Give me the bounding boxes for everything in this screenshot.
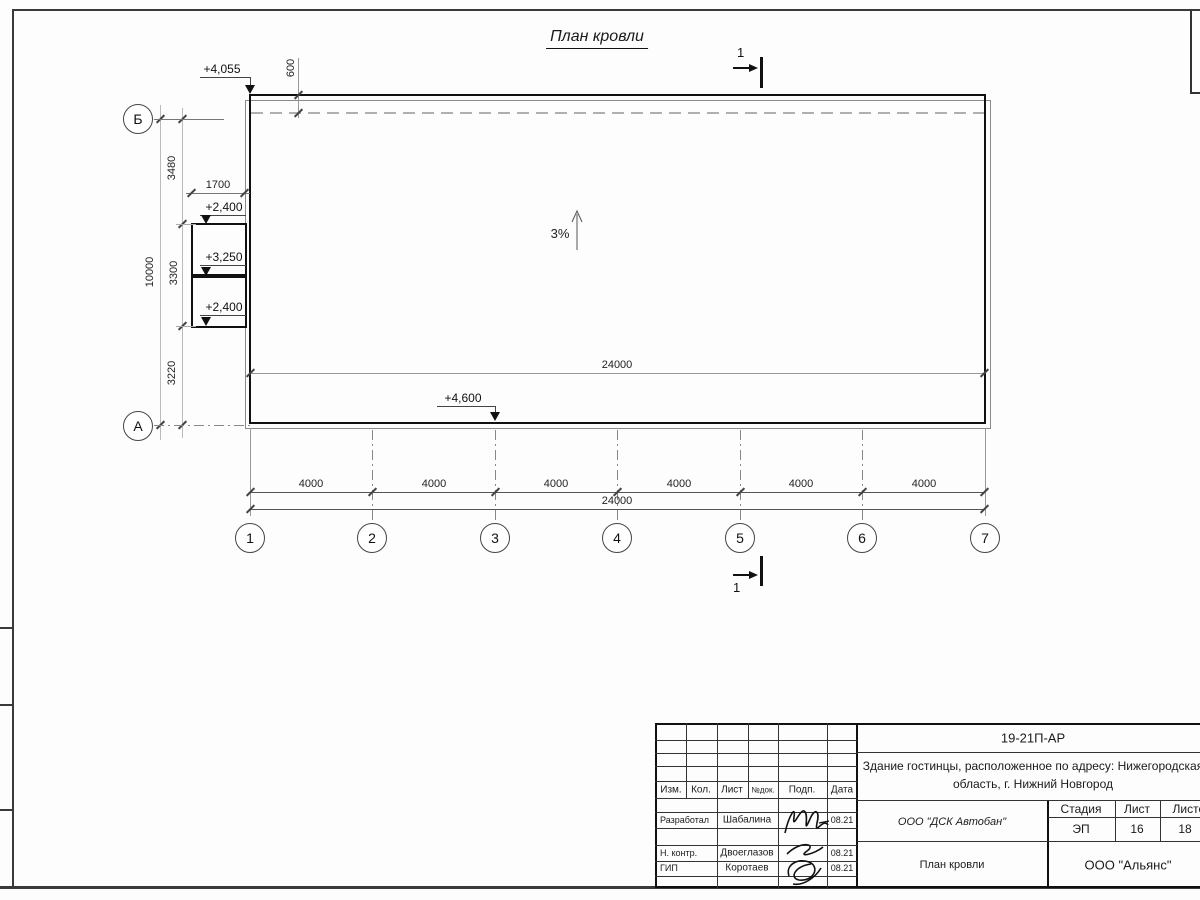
dim-3220-label: 3220 [166, 361, 178, 385]
elevation-leader [200, 265, 246, 266]
dim-4000-label: 4000 [912, 478, 936, 490]
axis-extension-5 [740, 430, 741, 520]
elevation-arrow [201, 317, 211, 326]
tb-name-gip: Коротаев [725, 863, 768, 874]
section-mark-top-arrow [749, 64, 758, 72]
dim-600-label: 600 [285, 59, 297, 77]
tb-list-value: 16 [1130, 822, 1143, 836]
axis-line-b [154, 119, 224, 120]
dim-600-extension [298, 58, 299, 118]
axis-label: 7 [981, 530, 989, 546]
axis-label: 5 [736, 530, 744, 546]
frame-left-tick-1 [0, 627, 12, 629]
tb-date-developer: 08.21 [831, 815, 854, 825]
axis-extension-3 [495, 430, 496, 520]
tb-header-data: Дата [831, 785, 853, 796]
dim-4000-label: 4000 [667, 478, 691, 490]
titleblock-left [655, 723, 657, 888]
axis-label: 1 [246, 530, 254, 546]
elevation-arrow [245, 85, 255, 94]
elevation-arrow [201, 267, 211, 276]
drawing-sheet: План кровли 3% 24000 1 1 +4,055 +2,400 +… [0, 0, 1200, 900]
elevation-annex-top: +2,400 [205, 200, 242, 214]
axis-label: Б [133, 111, 142, 127]
frame-left-tick-3 [0, 809, 12, 811]
axis-label: 3 [491, 530, 499, 546]
axis-label: 4 [613, 530, 621, 546]
tb-project-line2: область, г. Нижний Новгород [953, 777, 1113, 791]
dim-extension-axis1 [250, 428, 251, 516]
section-mark-bottom-arrowline [733, 574, 750, 576]
tb-line [857, 752, 1200, 753]
tb-header-izm: Изм. [660, 785, 681, 796]
elevation-top-left: +4,055 [203, 62, 240, 76]
section-mark-top-bar [760, 57, 763, 88]
section-mark-bottom-label: 1 [733, 580, 740, 595]
tb-header-podp: Подп. [789, 785, 816, 796]
tb-header-list: Лист [721, 785, 743, 796]
tb-role-ncontrol: Н. контр. [660, 848, 697, 858]
tb-list-header: Лист [1124, 802, 1150, 816]
dim-3480-label: 3480 [166, 156, 178, 180]
frame-left-border [12, 9, 14, 888]
section-mark-top-arrowline [733, 67, 750, 69]
interior-dim-line [250, 373, 985, 374]
elevation-arrow [490, 412, 500, 421]
dim-extension [176, 224, 196, 225]
section-mark-bottom-bar [760, 556, 763, 586]
tb-name-ncontrol: Двоеглазов [720, 848, 773, 859]
tb-line [1115, 800, 1116, 841]
dim-extension [176, 326, 196, 327]
axis-extension-6 [862, 430, 863, 520]
tb-line [857, 841, 1200, 842]
titleblock-top [655, 723, 1200, 725]
tb-doc-number: 19-21П-АР [1001, 731, 1065, 746]
corner-box-bottom-edge [1190, 92, 1200, 94]
dim-24000-line [250, 509, 985, 510]
tb-line [717, 723, 718, 888]
elevation-annex-mid: +3,250 [205, 250, 242, 264]
tb-project-line1: Здание гостинцы, расположенное по адресу… [863, 759, 1200, 773]
section-mark-top-label: 1 [737, 45, 744, 60]
dim-4000-label: 4000 [422, 478, 446, 490]
tb-contractor: ООО "ДСК Автобан" [898, 816, 1006, 828]
corner-box-left-edge [1190, 10, 1192, 93]
axis-line-a [154, 425, 250, 426]
dim-extension-axis7 [985, 428, 986, 516]
axis-extension-2 [372, 430, 373, 520]
axis-label: 2 [368, 530, 376, 546]
tb-stage-value: ЭП [1072, 822, 1089, 836]
dim-1700-label: 1700 [206, 179, 230, 191]
axis-label: А [133, 418, 142, 434]
roof-hidden-edge [251, 112, 984, 114]
tb-header-ndok: №док. [751, 786, 774, 795]
tb-role-gip: ГИП [660, 863, 678, 873]
dim-24000-label: 24000 [602, 495, 633, 507]
tb-name-developer: Шабалина [723, 815, 771, 826]
tb-date-ncontrol: 08.21 [831, 848, 854, 858]
tb-header-kol: Кол. [691, 785, 711, 796]
tb-company: ООО "Альянс" [1085, 858, 1172, 873]
elevation-bottom: +4,600 [444, 391, 481, 405]
tb-sheet-name: План кровли [920, 859, 985, 871]
roof-outline [249, 94, 986, 424]
dim-4000-label: 4000 [789, 478, 813, 490]
axis-bubble-row-a: А [123, 411, 153, 441]
tb-listov-value: 18 [1178, 822, 1191, 836]
elevation-leader [437, 406, 496, 407]
tb-line [748, 723, 749, 798]
axis-bubble-col-1: 1 [235, 523, 265, 553]
elevation-leader [200, 315, 246, 316]
titleblock-bottom [655, 886, 1200, 888]
dim-4000-label: 4000 [299, 478, 323, 490]
axis-label: 6 [858, 530, 866, 546]
axis-bubble-col-6: 6 [847, 523, 877, 553]
dim-3300-label: 3300 [168, 261, 180, 285]
tb-stage-header: Стадия [1061, 802, 1102, 816]
titleblock-divider-right [1047, 800, 1049, 888]
tb-date-gip: 08.21 [831, 863, 854, 873]
signature-gip [781, 838, 831, 888]
frame-left-tick-2 [0, 704, 12, 706]
axis-bubble-col-3: 3 [480, 523, 510, 553]
elevation-annex-bottom: +2,400 [205, 300, 242, 314]
axis-bubble-col-7: 7 [970, 523, 1000, 553]
section-mark-bottom-arrow [749, 571, 758, 579]
dim-chain-outer-line [160, 105, 161, 440]
elevation-arrow [201, 215, 211, 224]
frame-top-border [12, 9, 1200, 11]
tb-line [1160, 800, 1161, 841]
drawing-title: План кровли [546, 28, 648, 49]
axis-bubble-col-5: 5 [725, 523, 755, 553]
tb-line [686, 723, 687, 798]
elevation-leader [200, 77, 251, 78]
axis-bubble-row-b: Б [123, 104, 153, 134]
dim-4000-label: 4000 [544, 478, 568, 490]
tb-line [1048, 817, 1200, 818]
axis-bubble-col-4: 4 [602, 523, 632, 553]
tb-listov-header: Листов [1173, 802, 1200, 816]
dim-chain-inner-line [182, 108, 183, 438]
dim-10000-label: 10000 [144, 257, 156, 288]
tb-role-developer: Разработал [660, 815, 709, 825]
slope-arrow-icon [569, 208, 585, 252]
slope-label: 3% [551, 226, 570, 241]
interior-dim-label: 24000 [602, 359, 633, 371]
axis-bubble-col-2: 2 [357, 523, 387, 553]
tb-line [857, 800, 1200, 801]
titleblock-divider-main [856, 723, 858, 888]
